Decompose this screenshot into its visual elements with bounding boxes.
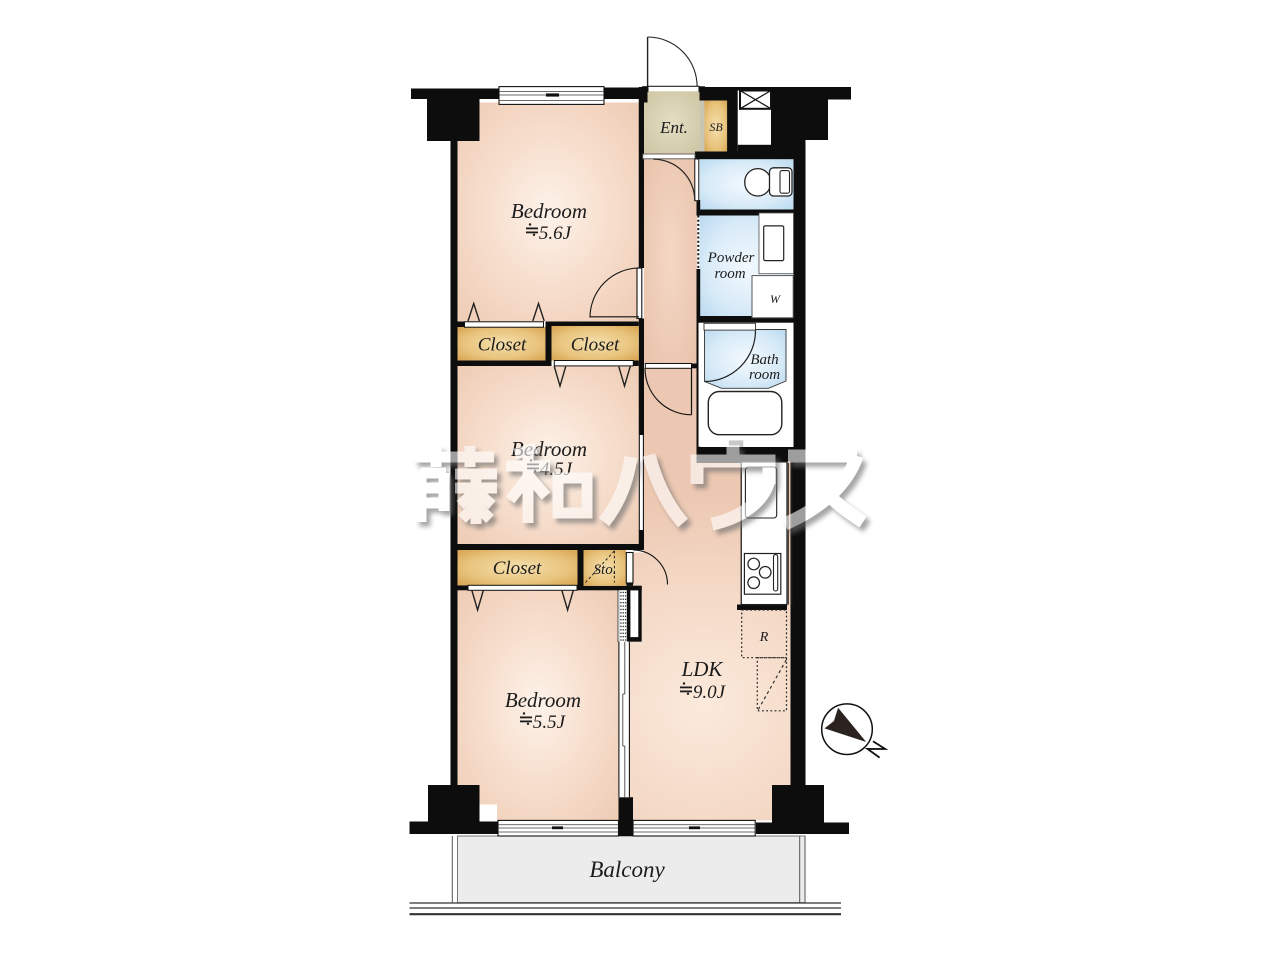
svg-text:Balcony: Balcony — [589, 857, 665, 882]
svg-text:Sto.: Sto. — [594, 562, 617, 578]
svg-text:LDK: LDK — [681, 657, 724, 681]
svg-text:Bedroom: Bedroom — [505, 688, 581, 712]
svg-text:W: W — [770, 292, 781, 306]
svg-text:Bath: Bath — [750, 352, 778, 368]
svg-text:5.6J: 5.6J — [539, 223, 573, 244]
svg-text:Closet: Closet — [493, 558, 542, 579]
svg-text:SB: SB — [709, 120, 723, 134]
svg-text:9.0J: 9.0J — [693, 682, 727, 703]
svg-text:Closet: Closet — [478, 335, 527, 356]
svg-text:Ent.: Ent. — [659, 118, 688, 137]
svg-text:room: room — [714, 266, 745, 282]
svg-text:Powder: Powder — [707, 250, 755, 266]
svg-text:Bedroom: Bedroom — [511, 199, 587, 223]
svg-text:R: R — [759, 630, 769, 645]
svg-text:Closet: Closet — [571, 335, 620, 356]
svg-text:room: room — [749, 367, 780, 383]
svg-text:5.5J: 5.5J — [533, 712, 567, 733]
